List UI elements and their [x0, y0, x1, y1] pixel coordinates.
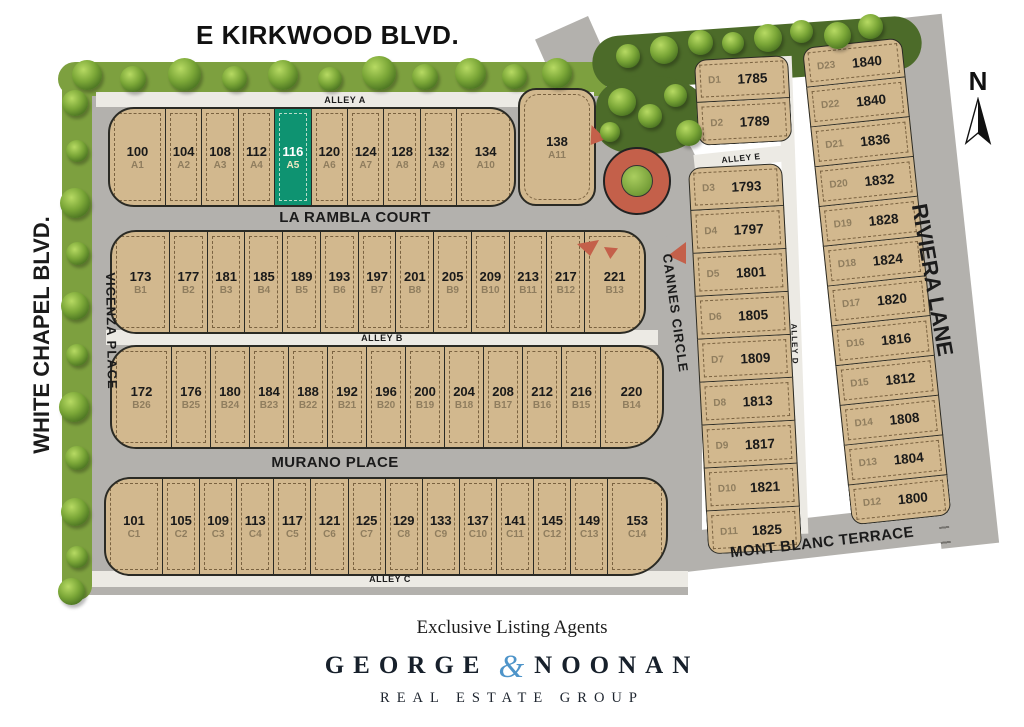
lot-id: A8 — [396, 160, 409, 171]
lot-number: 1801 — [736, 264, 767, 281]
lot-id: A9 — [432, 160, 445, 171]
tree-icon — [61, 498, 89, 526]
lot[interactable]: D10 1821 — [704, 464, 800, 512]
lot[interactable]: 141 C11 — [496, 479, 533, 574]
lot-number: 217 — [555, 269, 577, 284]
lot[interactable]: 133 C9 — [422, 479, 459, 574]
lot[interactable]: 117 C5 — [273, 479, 310, 574]
lot[interactable]: D8 1813 — [699, 378, 795, 426]
lot-number: 213 — [517, 269, 539, 284]
brokerage-name: GEORGE&NOONAN — [0, 649, 1024, 686]
lot-id: D12 — [862, 496, 881, 509]
lot-number: 1809 — [740, 349, 771, 366]
lot-number: 176 — [180, 384, 202, 399]
lot-number: 196 — [375, 384, 397, 399]
brand-last: NOONAN — [534, 652, 699, 679]
lot[interactable]: 184 B23 — [249, 347, 288, 447]
roundabout-center-island — [621, 165, 653, 197]
lot[interactable]: 189 B5 — [282, 232, 320, 332]
lot[interactable]: 113 C4 — [236, 479, 273, 574]
lot-number: 1800 — [897, 489, 928, 507]
lot-id: D9 — [715, 440, 728, 452]
lot[interactable]: 134 A10 — [456, 109, 514, 205]
lot-number: 1789 — [739, 113, 770, 130]
lot-number: 105 — [170, 513, 192, 528]
lot-number: 1840 — [851, 52, 882, 70]
lot-number: 1836 — [860, 131, 891, 149]
lot-id: B12 — [557, 285, 575, 296]
lot-id: D16 — [846, 337, 865, 350]
lot-id: C2 — [175, 529, 188, 540]
tree-icon — [362, 56, 396, 90]
lot[interactable]: 137 C10 — [459, 479, 496, 574]
lot[interactable]: 105 C2 — [162, 479, 199, 574]
tree-icon — [120, 66, 146, 92]
lot-id: B21 — [338, 400, 356, 411]
tree-icon — [676, 120, 702, 146]
lot[interactable]: 176 B25 — [171, 347, 210, 447]
lot-id: B23 — [260, 400, 278, 411]
tree-icon — [168, 58, 201, 91]
lot-number: 1840 — [855, 92, 886, 110]
lot-id: B14 — [622, 400, 640, 411]
lot[interactable]: 193 B6 — [320, 232, 358, 332]
lot-number: 128 — [391, 144, 413, 159]
lot-id: B19 — [416, 400, 434, 411]
lot-id: C7 — [360, 529, 373, 540]
lot-number: 149 — [578, 513, 600, 528]
tree-icon — [72, 60, 102, 90]
lot[interactable]: D5 1801 — [693, 249, 789, 297]
alley-a-label: ALLEY A — [324, 95, 366, 105]
tree-icon — [638, 104, 662, 128]
lot-id: A4 — [250, 160, 263, 171]
lot-id: C9 — [434, 529, 447, 540]
lot-id: B3 — [220, 285, 233, 296]
lot[interactable]: 121 C6 — [310, 479, 347, 574]
lot[interactable]: 101 C1 — [106, 479, 162, 574]
lot-number: 1785 — [737, 70, 768, 87]
lot[interactable]: 200 B19 — [405, 347, 444, 447]
lot-id: B4 — [257, 285, 270, 296]
lot-row-b-lower: 172 B26 176 B25 180 B24 184 B23 188 B22 … — [110, 345, 664, 449]
lot-number: 108 — [209, 144, 231, 159]
lot-number: 180 — [219, 384, 241, 399]
lot[interactable]: 181 B3 — [207, 232, 245, 332]
plat-map: ALLEY A ALLEY B ALLEY C ALLEY D ALLEY E … — [0, 0, 1024, 727]
lot[interactable]: 205 B9 — [433, 232, 471, 332]
compass-n-label: N — [950, 66, 1006, 97]
lot-id: C11 — [506, 529, 524, 540]
footer-branding: Exclusive Listing Agents GEORGE&NOONAN R… — [0, 617, 1024, 707]
lot-id: D2 — [710, 117, 723, 129]
lot[interactable]: 213 B11 — [509, 232, 547, 332]
lot-number: 145 — [541, 513, 563, 528]
lot-number: 193 — [328, 269, 350, 284]
lot-number: 101 — [123, 513, 145, 528]
lot[interactable]: 109 C3 — [199, 479, 236, 574]
tree-icon — [502, 64, 527, 89]
lot-number: 1804 — [893, 450, 924, 468]
lot-number: 201 — [404, 269, 426, 284]
lot[interactable]: 196 B20 — [366, 347, 405, 447]
lot-id: B20 — [377, 400, 395, 411]
lot-number: 181 — [215, 269, 237, 284]
lot[interactable]: 197 B7 — [358, 232, 396, 332]
alley-c-south-edge — [88, 587, 688, 595]
lot[interactable]: 104 A2 — [165, 109, 201, 205]
vicenza-place-label: VICENZA PLACE — [102, 256, 123, 406]
lot-id: A1 — [131, 160, 144, 171]
lot-number: 125 — [356, 513, 378, 528]
lot-id: B26 — [132, 400, 150, 411]
lot[interactable]: D3 1793 — [688, 163, 784, 211]
lot[interactable]: D7 1809 — [697, 335, 793, 383]
lot[interactable]: 120 A6 — [311, 109, 347, 205]
lot-number: 1817 — [745, 435, 776, 452]
lot[interactable]: 132 A9 — [420, 109, 456, 205]
lot-number: 1820 — [876, 290, 907, 308]
tree-icon — [824, 22, 851, 49]
lot-number: 221 — [604, 269, 626, 284]
lot-id: A11 — [548, 150, 566, 161]
tree-icon — [268, 60, 298, 90]
kirkwood-blvd-label: E KIRKWOOD BLVD. — [196, 20, 459, 51]
north-arrow-icon — [960, 97, 996, 147]
lot-id: A5 — [286, 160, 299, 171]
tree-icon — [59, 392, 89, 422]
lot-number: 1808 — [889, 410, 920, 428]
lot-id: D17 — [841, 297, 860, 310]
lot-id: D13 — [858, 456, 877, 469]
brand-ampersand: & — [498, 649, 524, 685]
lot[interactable]: 145 C12 — [533, 479, 570, 574]
tree-icon — [61, 292, 89, 320]
lot-number: 1793 — [731, 178, 762, 195]
alley-e-label: ALLEY E — [721, 151, 761, 165]
lot-number: 212 — [531, 384, 553, 399]
tree-icon — [790, 20, 813, 43]
lot-number: 200 — [414, 384, 436, 399]
d-column-west-upper: D1 1785 D2 1789 — [694, 55, 792, 146]
lot-number: 153 — [626, 513, 648, 528]
lot-id: B5 — [295, 285, 308, 296]
lot[interactable]: D4 1797 — [690, 206, 786, 254]
lot[interactable]: 204 B18 — [444, 347, 483, 447]
lot-id: A10 — [476, 160, 494, 171]
lot-number: 132 — [428, 144, 450, 159]
lot-id: C10 — [469, 529, 487, 540]
lot[interactable]: 212 B16 — [522, 347, 561, 447]
la-rambla-court-label: LA RAMBLA COURT — [105, 206, 605, 228]
lot-number: 220 — [621, 384, 643, 399]
lot-number: 104 — [173, 144, 195, 159]
lot-id: D19 — [833, 218, 852, 231]
lot-id: D3 — [702, 183, 715, 195]
tagline: Exclusive Listing Agents — [0, 617, 1024, 639]
lot-id: B6 — [333, 285, 346, 296]
lot-number: 141 — [504, 513, 526, 528]
lot-number: 177 — [177, 269, 199, 284]
lot-id: D22 — [821, 98, 840, 111]
lot-id: B2 — [182, 285, 195, 296]
lot[interactable]: 192 B21 — [327, 347, 366, 447]
lot-number: 133 — [430, 513, 452, 528]
lot-id: C8 — [397, 529, 410, 540]
lot-number: 189 — [291, 269, 313, 284]
compass: N — [950, 66, 1006, 147]
lot-id: B15 — [572, 400, 590, 411]
tree-icon — [616, 44, 640, 68]
tree-icon — [650, 36, 678, 64]
lot[interactable]: 128 A8 — [383, 109, 419, 205]
lot-number: 1805 — [738, 307, 769, 324]
lot-id: B11 — [519, 285, 537, 296]
lot-id: C12 — [543, 529, 561, 540]
tree-icon — [222, 66, 247, 91]
lot[interactable]: 124 A7 — [347, 109, 383, 205]
lot-id: D8 — [713, 397, 726, 409]
lot-id: D23 — [816, 59, 835, 72]
lot-number: 1816 — [880, 330, 911, 348]
lot[interactable]: 217 B12 — [546, 232, 584, 332]
lot-id: D20 — [829, 178, 848, 191]
lot-id: D10 — [718, 482, 737, 494]
lot-id: B22 — [299, 400, 317, 411]
lot-id: B7 — [371, 285, 384, 296]
lot-number: 188 — [297, 384, 319, 399]
lot-number: 100 — [127, 144, 149, 159]
lot-number: 184 — [258, 384, 280, 399]
lot[interactable]: 112 A4 — [238, 109, 274, 205]
lot-number: 216 — [570, 384, 592, 399]
tree-icon — [66, 140, 88, 162]
lot-138[interactable]: 138 A11 — [518, 88, 596, 206]
lot-number: 113 — [245, 513, 266, 528]
lot-id: B9 — [446, 285, 459, 296]
lot-number: 120 — [318, 144, 340, 159]
tree-icon — [58, 578, 85, 605]
lot-id: B17 — [494, 400, 512, 411]
lot-number: 137 — [467, 513, 489, 528]
lot[interactable]: 125 C7 — [348, 479, 385, 574]
lot-number: 121 — [319, 513, 341, 528]
tree-icon — [600, 122, 620, 142]
lot-id: C6 — [323, 529, 336, 540]
lot-number: 1824 — [872, 251, 903, 269]
tree-icon — [60, 188, 90, 218]
lot-id: B13 — [605, 285, 623, 296]
lot[interactable]: D1 1785 — [694, 55, 790, 103]
tree-icon — [412, 64, 438, 90]
lot-id: D4 — [704, 225, 717, 237]
lot-id: B18 — [455, 400, 473, 411]
lot-number: 197 — [366, 269, 388, 284]
lot-id: D21 — [825, 138, 844, 151]
lot-id: B8 — [408, 285, 421, 296]
lot[interactable]: 209 B10 — [471, 232, 509, 332]
lot[interactable]: 177 B2 — [169, 232, 207, 332]
lot-id: D18 — [837, 258, 856, 271]
lot-number: 173 — [130, 269, 152, 284]
lot-number: 112 — [246, 144, 267, 159]
lot[interactable]: 149 C13 — [570, 479, 607, 574]
lot[interactable]: 220 B14 — [600, 347, 662, 447]
lot-id: C4 — [249, 529, 262, 540]
lot-number: 185 — [253, 269, 275, 284]
tree-icon — [66, 344, 88, 366]
lot-row-a: 100 A1 104 A2 108 A3 112 A4 116 A5 120 A… — [108, 107, 516, 207]
lot-id: C5 — [286, 529, 299, 540]
lot[interactable]: 129 C8 — [385, 479, 422, 574]
tree-icon — [608, 88, 636, 116]
lot-id: A6 — [323, 160, 336, 171]
lot-id: C14 — [628, 529, 646, 540]
lot-id: A3 — [214, 160, 227, 171]
tree-icon — [66, 242, 89, 265]
lot[interactable]: 100 A1 — [110, 109, 165, 205]
lot-id: B1 — [134, 285, 147, 296]
lot[interactable]: 208 B17 — [483, 347, 522, 447]
lot-number: 205 — [442, 269, 464, 284]
lot[interactable]: 180 B24 — [210, 347, 249, 447]
lot-number: 172 — [131, 384, 153, 399]
lot-number: 1821 — [750, 478, 781, 495]
tree-icon — [664, 84, 687, 107]
lot-row-b-upper: 173 B1 177 B2 181 B3 185 B4 189 B5 193 B… — [110, 230, 646, 334]
lot[interactable]: 116 A5 — [274, 109, 310, 205]
lot-id: B25 — [182, 400, 200, 411]
lot[interactable]: 108 A3 — [201, 109, 237, 205]
murano-place-label: MURANO PLACE — [85, 450, 585, 474]
lot-id: D1 — [708, 75, 721, 87]
lot[interactable]: 216 B15 — [561, 347, 600, 447]
lot-id: D15 — [850, 377, 869, 390]
lot-row-c: 101 C1 105 C2 109 C3 113 C4 117 C5 121 C… — [104, 477, 668, 576]
lot-number: 134 — [475, 144, 497, 159]
lot-number: 109 — [207, 513, 229, 528]
lot[interactable]: 201 B8 — [395, 232, 433, 332]
lot-number: 116 — [282, 144, 303, 159]
lot-number: 192 — [336, 384, 358, 399]
lot-number: 209 — [479, 269, 501, 284]
lot-number: 129 — [393, 513, 415, 528]
tree-icon — [754, 24, 782, 52]
lot-id: B10 — [481, 285, 499, 296]
lot-id: A7 — [359, 160, 372, 171]
brand-first: GEORGE — [325, 652, 489, 679]
lot[interactable]: 153 C14 — [607, 479, 666, 574]
tree-icon — [318, 67, 342, 91]
alley-b-label: ALLEY B — [361, 333, 403, 343]
tree-icon — [62, 90, 88, 116]
tree-icon — [858, 14, 883, 39]
lot[interactable]: 188 B22 — [288, 347, 327, 447]
tree-icon — [688, 30, 713, 55]
lot-id: C13 — [580, 529, 598, 540]
lot-id: D5 — [706, 268, 719, 280]
lot-number: 1828 — [868, 211, 899, 229]
lot-id: C3 — [212, 529, 225, 540]
lot-id: D7 — [711, 354, 724, 366]
lot-number: 138 — [546, 134, 568, 149]
lot-id: A2 — [177, 160, 190, 171]
lot[interactable]: D2 1789 — [696, 98, 792, 146]
brokerage-subtitle: REAL ESTATE GROUP — [0, 690, 1024, 707]
tree-icon — [542, 58, 572, 88]
lot-id: D11 — [720, 525, 738, 537]
lot-number: 1812 — [885, 370, 916, 388]
lot-id: D6 — [709, 311, 722, 323]
lot-number: 1797 — [733, 221, 764, 238]
lot[interactable]: 185 B4 — [244, 232, 282, 332]
lot-id: D14 — [854, 417, 873, 430]
lot-id: C1 — [128, 529, 141, 540]
lot-id: B24 — [221, 400, 239, 411]
lot[interactable]: D6 1805 — [695, 292, 791, 340]
white-chapel-blvd-label: WHITE CHAPEL BLVD. — [29, 185, 55, 485]
lot-number: 1832 — [864, 171, 895, 189]
lot-id: B16 — [533, 400, 551, 411]
lot-number: 117 — [282, 513, 303, 528]
tree-icon — [66, 546, 88, 568]
lot[interactable]: D9 1817 — [702, 421, 798, 469]
tree-icon — [455, 58, 486, 89]
lot-number: 124 — [355, 144, 377, 159]
tree-icon — [722, 32, 744, 54]
lot-number: 1813 — [742, 392, 773, 409]
lot-number: 1825 — [752, 521, 783, 538]
lot-number: 204 — [453, 384, 475, 399]
tree-icon — [65, 446, 89, 470]
lot-number: 208 — [492, 384, 514, 399]
